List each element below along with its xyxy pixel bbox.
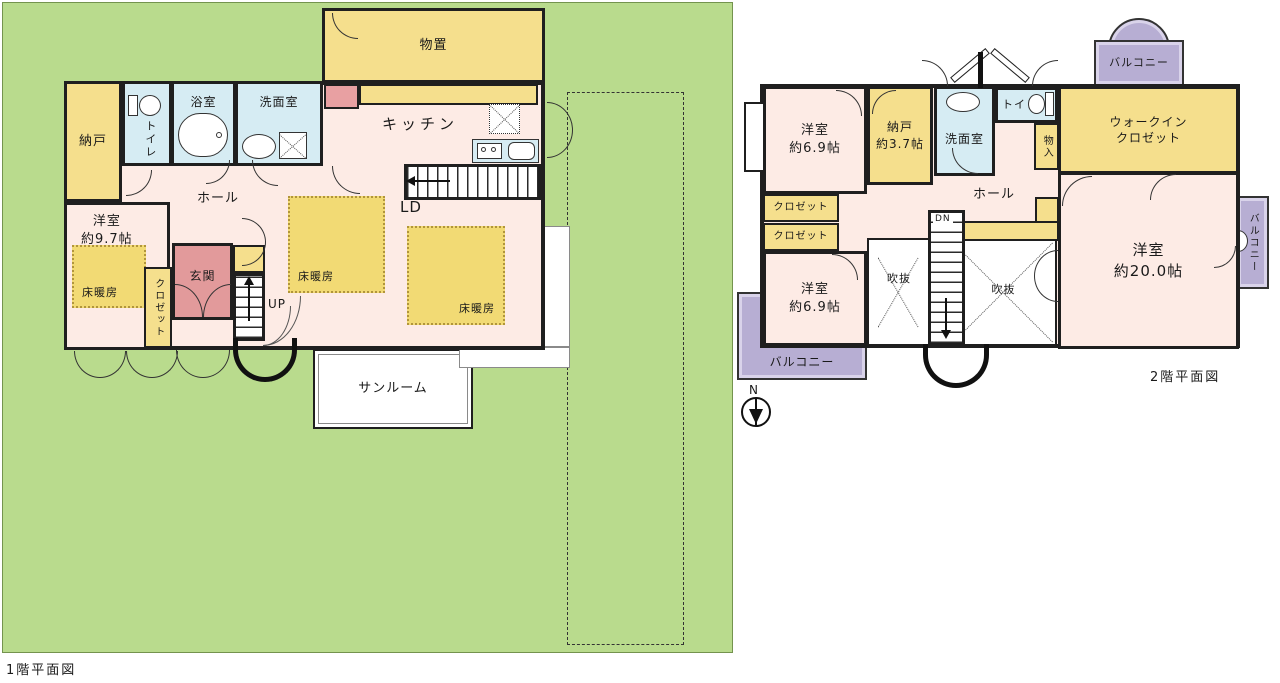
yoshitsu-2f-a-label: 洋室 約6.9帖 bbox=[789, 122, 841, 157]
toilet-1f-label: トイレ bbox=[142, 120, 157, 159]
room-sunroom: サンルーム bbox=[313, 349, 473, 429]
door-arc-peak-right bbox=[1032, 60, 1058, 86]
floor-heating-label: 床暖房 bbox=[459, 302, 495, 317]
sink-2f-icon bbox=[946, 92, 980, 112]
closet-1f: クロゼット bbox=[144, 267, 172, 348]
genkan-label: 玄関 bbox=[189, 268, 215, 284]
stairs-1f bbox=[404, 164, 541, 200]
sink-1f-icon bbox=[242, 134, 276, 159]
hall-counter-v bbox=[1035, 197, 1059, 223]
peak-window-left bbox=[950, 48, 990, 83]
stairs-up-arrow-line bbox=[248, 283, 250, 321]
parking-dashed-outline bbox=[567, 92, 684, 645]
kitchen-top-counter bbox=[359, 84, 538, 105]
kitchen-sink-icon bbox=[508, 142, 535, 160]
deck-bottom bbox=[459, 347, 570, 368]
toilet-2f-bowl-icon bbox=[1028, 94, 1045, 114]
bath-1f-label: 浴室 bbox=[190, 94, 216, 110]
senmen-2f-label: 洗面室 bbox=[945, 131, 984, 147]
stove-burner-1 bbox=[481, 147, 486, 152]
ld-label: LD bbox=[400, 197, 422, 217]
compass-needle-south bbox=[749, 409, 763, 424]
toilet-bowl-icon bbox=[139, 95, 161, 116]
floor-heating-ld-2: 床暖房 bbox=[407, 226, 505, 325]
closet-2f-2-label: クロゼット bbox=[774, 230, 829, 244]
stairs-up-arrow-head bbox=[244, 276, 254, 285]
kitchen-label: キッチン bbox=[382, 114, 458, 134]
room-wic: ウォークイン クロゼット bbox=[1058, 86, 1239, 174]
sunroom-label: サンルーム bbox=[358, 380, 428, 398]
nando-1f-label: 納戸 bbox=[79, 133, 107, 151]
void-left-label: 吹抜 bbox=[869, 272, 929, 287]
floor-heating-label: 床暖房 bbox=[82, 286, 118, 301]
senmen-1f-label: 洗面室 bbox=[259, 94, 298, 110]
floor2-caption: 2階平面図 bbox=[1150, 366, 1220, 385]
storage-shed-label: 物置 bbox=[419, 37, 447, 55]
room-nando-1f: 納戸 bbox=[64, 81, 122, 202]
void-left bbox=[867, 238, 930, 346]
wic-label: ウォークイン クロゼット bbox=[1109, 114, 1187, 146]
toilet-tank-icon bbox=[128, 95, 138, 116]
refrigerator-space-icon bbox=[489, 104, 520, 134]
dn-label: DN bbox=[933, 213, 953, 225]
closet-1f-label: クロゼット bbox=[151, 278, 165, 338]
stair-turn-arc-2f bbox=[923, 344, 989, 388]
floor-heating-ld-1: 床暖房 bbox=[288, 196, 385, 293]
yoshitsu-2f-c-label: 洋室 約20.0帖 bbox=[1114, 240, 1183, 281]
closet-monoire: 物入 bbox=[1034, 123, 1059, 170]
door-arc-peak-left bbox=[922, 60, 948, 86]
toilet-2f-tank-icon bbox=[1045, 92, 1054, 116]
floor-heating-bedroom: 床暖房 bbox=[72, 245, 146, 308]
hall-1f-label: ホール bbox=[197, 190, 239, 208]
stairs-1f-arrow-line bbox=[414, 180, 450, 182]
bathtub-drain-icon bbox=[216, 132, 222, 138]
yoshitsu-2f-b-label: 洋室 約6.9帖 bbox=[789, 281, 841, 316]
balcony-bottom-left-label: バルコニー bbox=[737, 354, 867, 370]
yoshitsu-1f-label: 洋室 約9.7帖 bbox=[81, 213, 133, 248]
peak-wall-stub bbox=[978, 52, 983, 88]
closet-2f-2: クロゼット bbox=[763, 223, 839, 251]
bay-window bbox=[744, 102, 765, 172]
washer-1f-icon bbox=[279, 132, 307, 159]
nando-2f-label: 納戸 約3.7帖 bbox=[876, 119, 924, 151]
hall-2f-label: ホール bbox=[973, 186, 1015, 204]
stairs-dn-arrow-line bbox=[945, 298, 947, 332]
stove-burner-2 bbox=[491, 147, 496, 152]
stairs-1f-arrow-head bbox=[406, 176, 415, 186]
kitchen-pantry-block bbox=[324, 84, 359, 109]
closet-2f-1: クロゼット bbox=[763, 194, 839, 222]
stairs-dn-arrow-head bbox=[941, 330, 951, 339]
floor-heating-label: 床暖房 bbox=[298, 270, 334, 285]
peak-window-right bbox=[990, 48, 1030, 83]
balcony-top-label: バルコニー bbox=[1094, 56, 1184, 71]
compass-n-label: N bbox=[749, 382, 759, 398]
closet-2f-1-label: クロゼット bbox=[774, 201, 829, 215]
hall-counter-h bbox=[960, 221, 1059, 241]
monoire-label: 物入 bbox=[1040, 135, 1054, 159]
floor1-caption: 1階平面図 bbox=[6, 659, 76, 678]
